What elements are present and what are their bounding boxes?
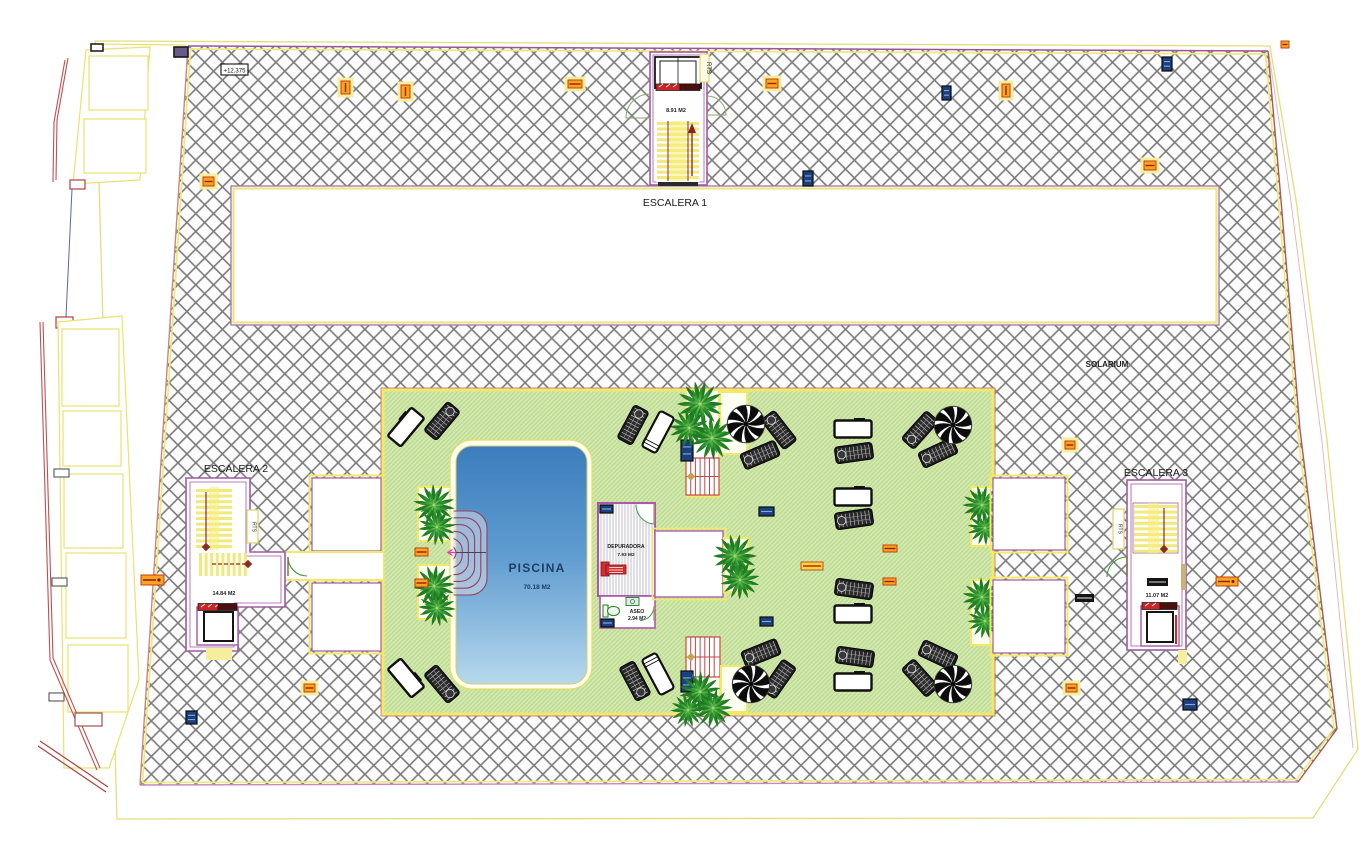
svg-text:SOLARIUM: SOLARIUM [1086,360,1129,369]
svg-text:14.84 M2: 14.84 M2 [213,591,236,597]
svg-text:DEPURADORA: DEPURADORA [607,544,644,550]
svg-text:RTS: RTS [251,522,257,533]
svg-text:ESCALERA 3: ESCALERA 3 [1124,467,1188,479]
svg-text:ASEO: ASEO [630,609,645,615]
svg-text:11.07 M2: 11.07 M2 [1146,593,1169,599]
svg-text:RTS: RTS [1117,524,1123,535]
svg-text:+12.375: +12.375 [224,68,247,74]
svg-text:2.94 M2: 2.94 M2 [628,616,646,622]
svg-text:RTS: RTS [705,62,711,74]
svg-text:PISCINA: PISCINA [508,561,565,575]
svg-text:8.91 M2: 8.91 M2 [666,108,686,114]
svg-text:7.93 M2: 7.93 M2 [617,552,635,558]
svg-text:ESCALERA 1: ESCALERA 1 [643,197,707,209]
svg-text:70.18 M2: 70.18 M2 [523,584,550,591]
svg-text:ESCALERA 2: ESCALERA 2 [204,463,268,475]
